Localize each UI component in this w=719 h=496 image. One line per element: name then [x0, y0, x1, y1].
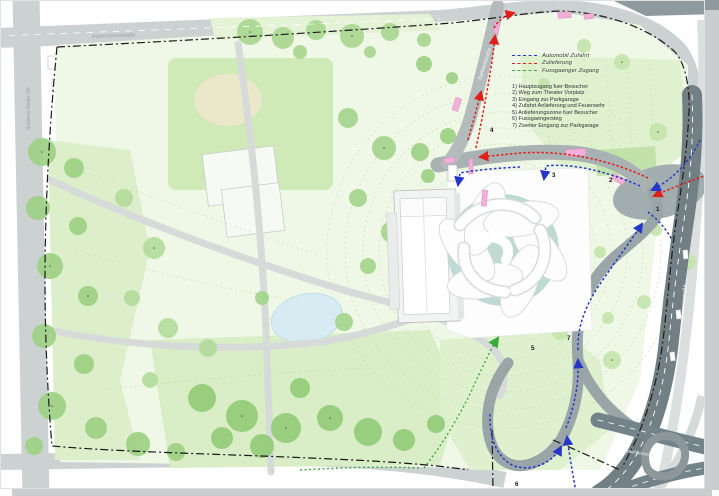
- legend-label: Zulieferung: [542, 60, 572, 66]
- marker-6: 6: [515, 481, 519, 488]
- pedestrian-route-line-sample: [512, 70, 537, 71]
- legend-row-delivery: Zulieferung: [512, 60, 662, 68]
- theater-complex: [386, 168, 592, 338]
- entry-pavilion: [448, 165, 457, 181]
- marker-2: 2: [609, 177, 613, 184]
- site-plan-sheet: 1 2 3 4 5 6 7 Ackermannstraße Schwere-Re…: [0, 0, 719, 496]
- legend-item-2: 2) Weg zum Theater Vorplatz: [512, 90, 662, 97]
- marker-3: 3: [552, 172, 556, 179]
- legend-route-key: Automobil Zufahrt Zulieferung Fussgaenge…: [512, 52, 662, 75]
- delivery-route-line-sample: [512, 63, 537, 64]
- legend-label: Fussgaenger Zugang: [542, 68, 599, 74]
- legend-item-1: 1) Hauptzugang fuer Besucher: [512, 84, 662, 91]
- legend-item-7: 7) Zweiter Eingang zur Parkgarage: [512, 123, 662, 130]
- legend-row-pedestrian: Fussgaenger Zugang: [512, 67, 662, 75]
- car-route-line-sample: [512, 55, 537, 56]
- legend-item-6: 6) Fussgaengersteg: [512, 116, 662, 123]
- legend-label: Automobil Zufahrt: [542, 53, 589, 59]
- street-label-left-road: Schwere-Reiter-Str.: [26, 86, 32, 130]
- marker-4: 4: [490, 127, 494, 134]
- legend-item-3: 3) Eingang zur Parkgarage: [512, 97, 662, 104]
- marker-7: 7: [567, 335, 571, 342]
- marker-1: 1: [656, 206, 660, 213]
- legend-item-5: 5) Anlieferungszone fuer Besucher: [512, 110, 662, 117]
- marker-5: 5: [531, 345, 535, 352]
- legend: Automobil Zufahrt Zulieferung Fussgaenge…: [512, 52, 662, 130]
- legend-item-4: 4) Zufahrt Anlieferung und Feuerwehr: [512, 103, 662, 110]
- legend-row-car: Automobil Zufahrt: [512, 52, 662, 60]
- legend-numbered-list: 1) Hauptzugang fuer Besucher 2) Weg zum …: [512, 84, 662, 130]
